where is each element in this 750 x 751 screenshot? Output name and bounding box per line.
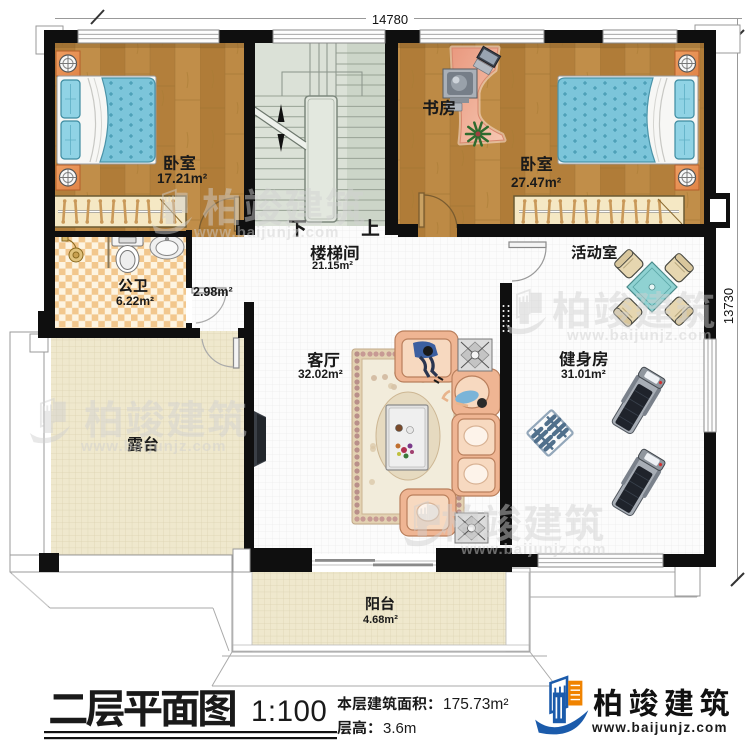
- svg-text:www.baijunjz.com: www.baijunjz.com: [460, 541, 606, 558]
- svg-text:3.6m: 3.6m: [383, 720, 416, 737]
- svg-text:32.02m²: 32.02m²: [298, 367, 343, 381]
- svg-text:21.15m²: 21.15m²: [312, 260, 353, 272]
- svg-text:13730: 13730: [721, 288, 736, 324]
- svg-text:175.73m²: 175.73m²: [443, 696, 508, 713]
- svg-text:6.22m²: 6.22m²: [116, 294, 154, 308]
- svg-text:31.01m²: 31.01m²: [561, 367, 606, 381]
- svg-text:14780: 14780: [372, 12, 408, 27]
- svg-text:17.21m²: 17.21m²: [157, 171, 208, 186]
- svg-text:4.68m²: 4.68m²: [363, 614, 398, 626]
- svg-text:2.98m²: 2.98m²: [193, 285, 233, 299]
- svg-text:www.baijunjz.com: www.baijunjz.com: [193, 224, 339, 241]
- svg-text:www.baijunjz.com: www.baijunjz.com: [80, 438, 226, 455]
- svg-text:27.47m²: 27.47m²: [511, 175, 562, 190]
- svg-text:www.baijunjz.com: www.baijunjz.com: [566, 327, 712, 344]
- svg-text:www.baijunjz.com: www.baijunjz.com: [591, 720, 728, 735]
- svg-text:1:100: 1:100: [251, 695, 327, 728]
